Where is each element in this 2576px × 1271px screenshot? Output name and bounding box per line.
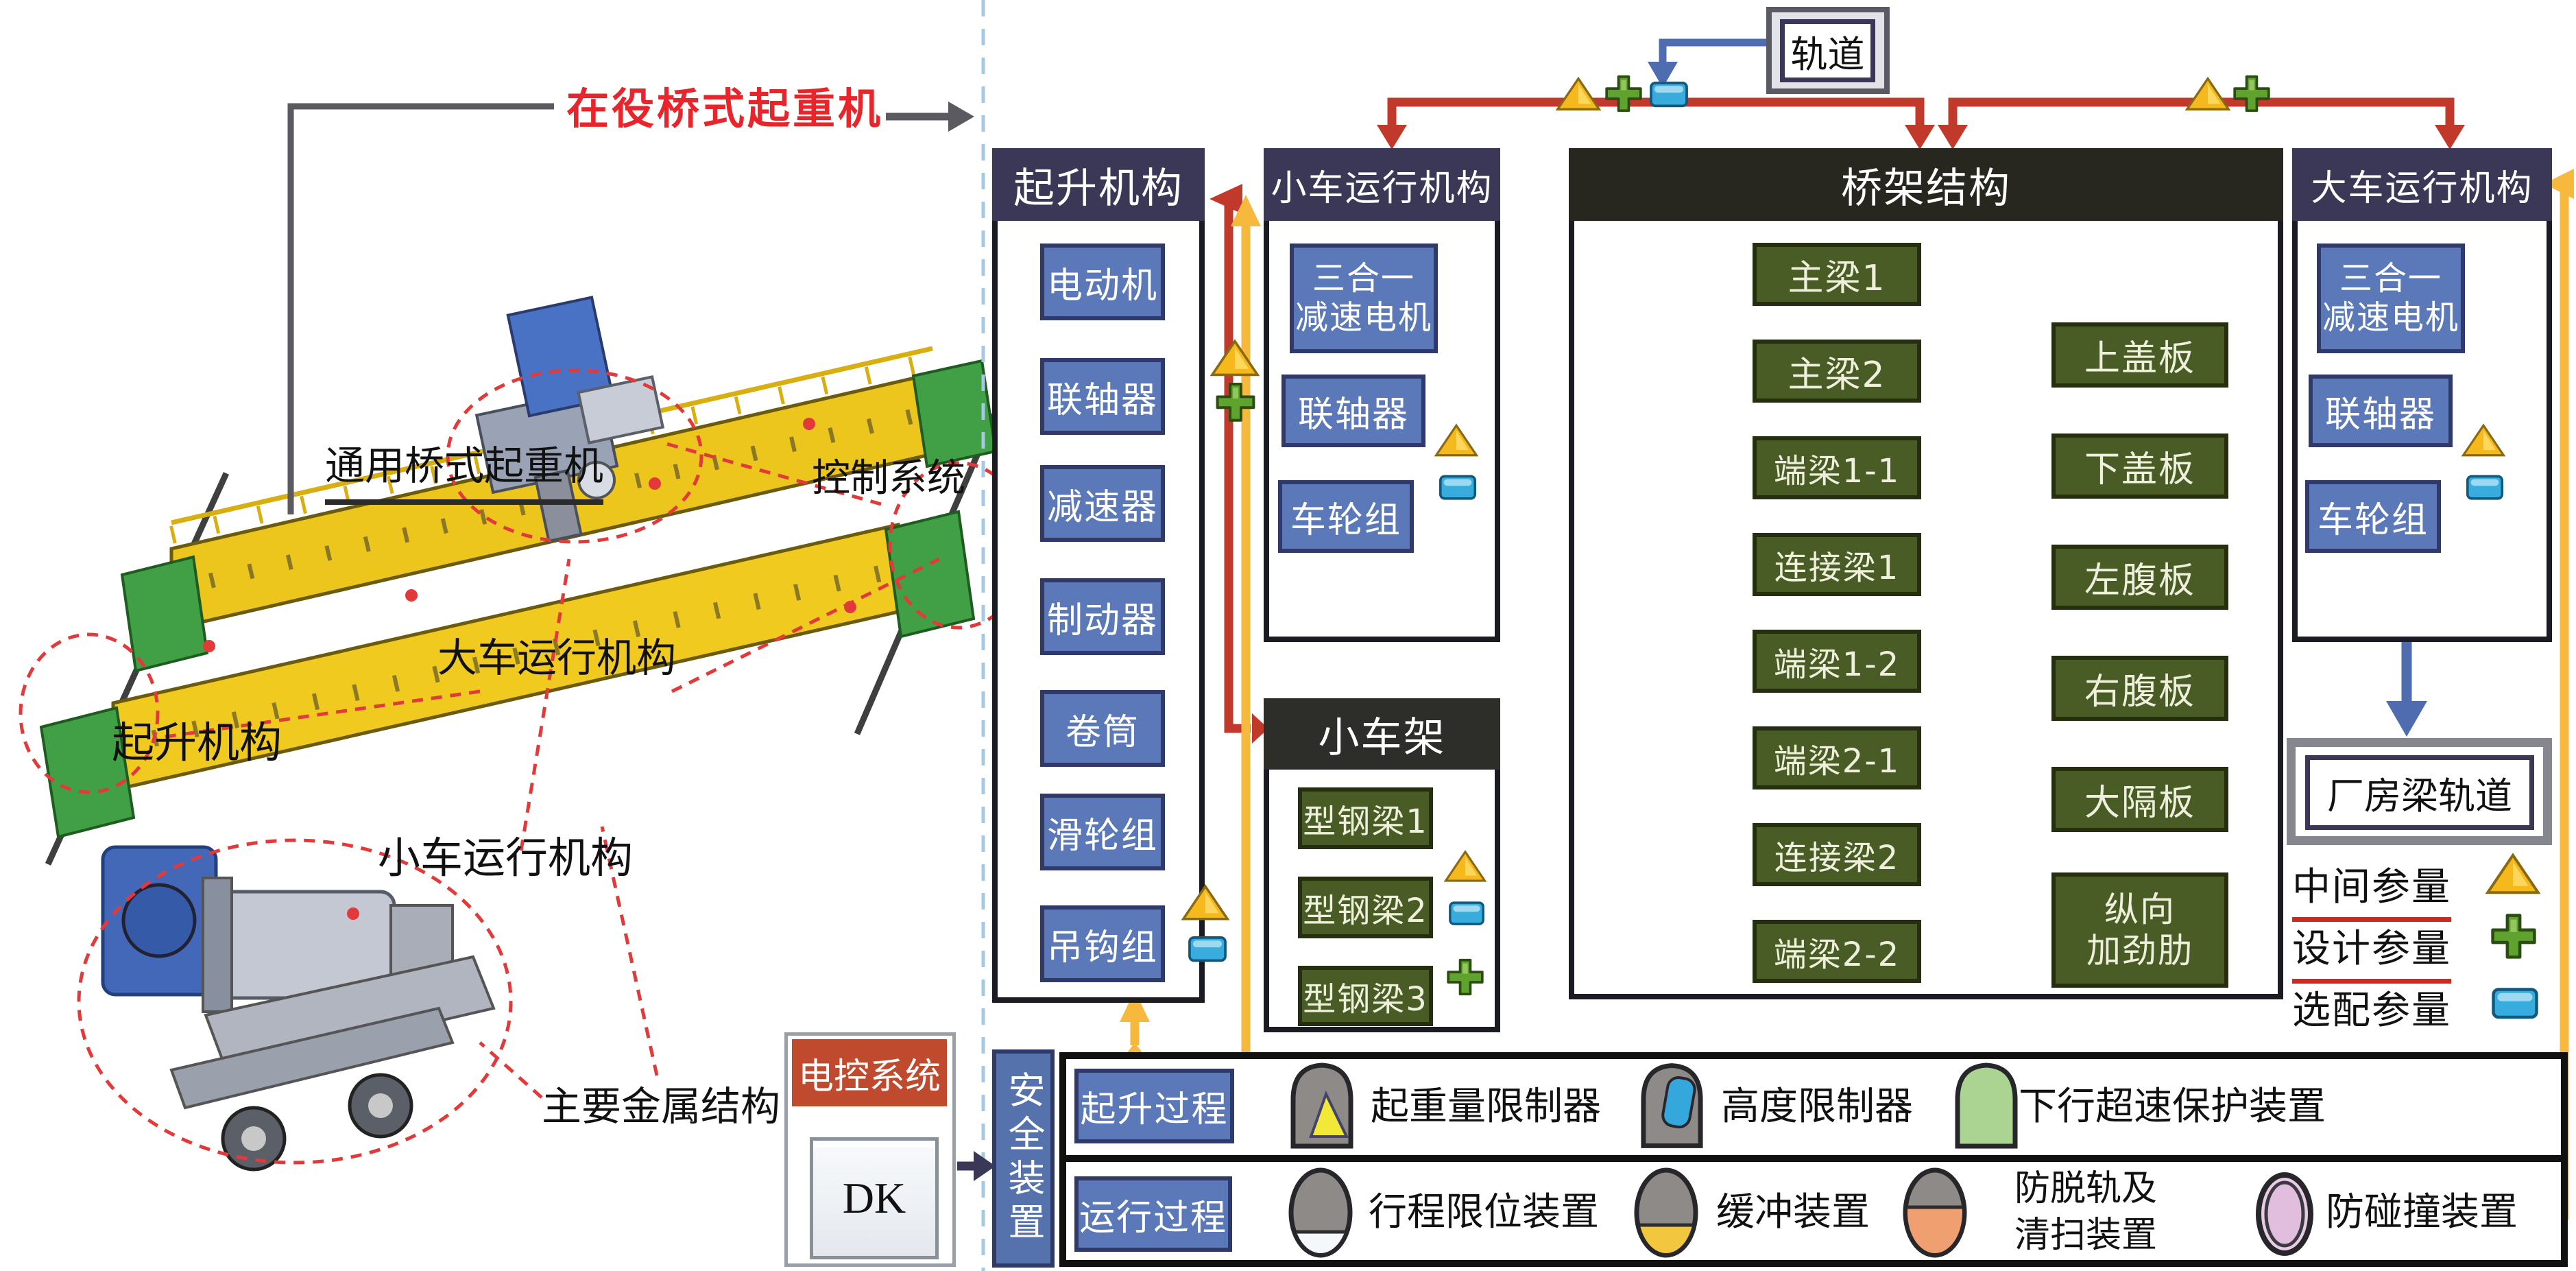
- factory-track-outer: 厂房梁轨道: [2287, 738, 2552, 845]
- overspeed-protection-icon: [1951, 1060, 2022, 1150]
- stiffener-line1: 纵向: [2104, 889, 2176, 930]
- hoist-coupling-box: 联轴器: [1040, 358, 1165, 435]
- height-limiter-label: 高度限制器: [1721, 1076, 1913, 1131]
- hoist-reducer-box: 减速器: [1040, 465, 1165, 542]
- intermediate-parameter-icon: [2461, 423, 2505, 458]
- cart-mechanism-label: 大车运行机构: [437, 626, 676, 683]
- cart-run-panel-header: 大车运行机构: [2292, 148, 2552, 221]
- factory-track-box: 厂房梁轨道: [2305, 755, 2534, 830]
- hoist-brake-box: 制动器: [1040, 578, 1165, 655]
- diaphragm-plate-box: 大隔板: [2051, 767, 2228, 832]
- stiffener-line2: 加劲肋: [2086, 930, 2193, 971]
- electric-control-header: 电控系统: [792, 1039, 947, 1106]
- intermediate-parameter-icon: [1181, 883, 1230, 922]
- trolley-mechanism-label: 小车运行机构: [378, 823, 633, 885]
- general-crane-label: 通用桥式起重机: [325, 433, 603, 505]
- trolley-frame-panel-header: 小车架: [1264, 698, 1500, 770]
- design-parameter-icon: [2230, 74, 2274, 117]
- title-arrow-icon: [948, 102, 974, 132]
- gear-motor-line1: 三合一: [2339, 259, 2442, 298]
- cart-wheel-box: 车轮组: [2305, 480, 2441, 553]
- dk-box: DK: [810, 1137, 939, 1259]
- steel-beam2-box: 型钢梁2: [1298, 877, 1433, 938]
- longitudinal-stiffener-box: 纵向 加劲肋: [2051, 872, 2228, 988]
- overspeed-protection-label: 下行超速保护装置: [2019, 1076, 2326, 1131]
- derail-line1: 防脱轨及: [2014, 1168, 2157, 1209]
- steel-beam1-box: 型钢梁1: [1298, 787, 1433, 849]
- optional-parameter-icon: [2489, 982, 2541, 1023]
- hoist-hook-box: 吊钩组: [1040, 905, 1165, 982]
- optional-parameter-icon: [2464, 471, 2505, 503]
- buffer-icon: [1632, 1165, 1700, 1261]
- hoist-pulley-box: 滑轮组: [1040, 794, 1165, 870]
- optional-parameter-icon: [1447, 897, 1486, 929]
- height-limiter-icon: [1637, 1060, 1707, 1150]
- hoist-panel-header: 起升机构: [992, 148, 1205, 221]
- main-girder1-box: 主梁1: [1753, 243, 1921, 306]
- travel-limit-label: 行程限位装置: [1369, 1181, 1599, 1237]
- bridge-panel-header: 桥架结构: [1569, 148, 2283, 221]
- optional-parameter-icon: [1437, 471, 1478, 503]
- control-system-label: 控制系统: [812, 447, 965, 503]
- optional-parameter-icon: [1186, 931, 1229, 966]
- steel-beam3-box: 型钢梁3: [1298, 966, 1433, 1026]
- top-plate-box: 上盖板: [2051, 322, 2228, 388]
- connect-beam1-box: 连接梁1: [1753, 533, 1921, 596]
- load-limiter-label: 起重量限制器: [1371, 1076, 1601, 1131]
- cart-coupling-box: 联轴器: [2309, 375, 2453, 447]
- gear-motor-line2: 减速电机: [2322, 298, 2459, 337]
- gear-motor-line2: 减速电机: [1295, 298, 1432, 337]
- derail-sweeper-icon: [1901, 1165, 1969, 1261]
- bottom-plate-box: 下盖板: [2051, 433, 2228, 499]
- intermediate-parameter-icon: [2485, 852, 2540, 896]
- main-girder2-box: 主梁2: [1753, 340, 1921, 403]
- in-service-crane-title: 在役桥式起重机: [566, 74, 883, 136]
- intermediate-parameter-icon: [1444, 849, 1486, 883]
- legend-intermediate-label: 中间参量: [2292, 856, 2451, 922]
- design-parameter-icon: [1211, 381, 1260, 427]
- safety-devices-text: 安全装置: [996, 1071, 1050, 1246]
- gear-motor-line1: 三合一: [1312, 259, 1415, 298]
- legend-optional-label: 选配参量: [2292, 979, 2451, 1035]
- intermediate-parameter-icon: [2185, 75, 2230, 112]
- run-stage-box: 运行过程: [1074, 1176, 1232, 1252]
- end-beam1-2-box: 端梁1-2: [1753, 630, 1921, 693]
- hoist-stage-box: 起升过程: [1074, 1069, 1234, 1143]
- load-limiter-icon: [1286, 1060, 1358, 1150]
- cart-gear-motor-box: 三合一 减速电机: [2317, 243, 2465, 353]
- trolley-wheel-box: 车轮组: [1278, 480, 1414, 553]
- design-parameter-icon: [1443, 958, 1488, 1000]
- safety-row-divider: [1059, 1155, 2568, 1162]
- anti-collision-label: 防碰撞装置: [2326, 1181, 2518, 1237]
- derail-sweeper-label: 防脱轨及 清扫装置: [2014, 1166, 2157, 1259]
- design-parameter-icon: [1602, 74, 1646, 117]
- end-beam2-1-box: 端梁2-1: [1753, 726, 1921, 789]
- intermediate-parameter-icon: [1210, 338, 1260, 378]
- end-beam1-1-box: 端梁1-1: [1753, 436, 1921, 499]
- intermediate-parameter-icon: [1556, 75, 1601, 112]
- legend-design-label: 设计参量: [2292, 918, 2451, 984]
- connect-beam2-box: 连接梁2: [1753, 823, 1921, 886]
- left-web-plate-box: 左腹板: [2051, 545, 2228, 610]
- hoist-motor-box: 电动机: [1040, 243, 1165, 320]
- electric-control-outer: 电控系统 DK: [784, 1032, 956, 1267]
- bridge-crane-structure-diagram: 在役桥式起重机 通用桥式起重机 大车运行机构 控制系统 起升机构 小车运行机构 …: [0, 0, 2576, 1271]
- derail-line2: 清扫装置: [2014, 1215, 2157, 1256]
- track-box-outer: 轨道: [1766, 7, 1890, 94]
- safety-devices-label: 安全装置: [992, 1049, 1055, 1268]
- trolley-gear-motor-box: 三合一 减速电机: [1290, 243, 1438, 353]
- hoist-drum-box: 卷筒: [1040, 690, 1165, 767]
- end-beam2-2-box: 端梁2-2: [1753, 920, 1921, 983]
- anti-collision-icon: [2254, 1169, 2315, 1259]
- trolley-coupling-box: 联轴器: [1281, 375, 1425, 447]
- travel-limit-icon: [1286, 1165, 1355, 1261]
- buffer-label: 缓冲装置: [1716, 1181, 1870, 1237]
- hoist-mechanism-label: 起升机构: [112, 708, 282, 770]
- optional-parameter-icon: [1648, 77, 1690, 111]
- track-box: 轨道: [1780, 19, 1875, 82]
- intermediate-parameter-icon: [1434, 423, 1478, 458]
- right-web-plate-box: 右腹板: [2051, 656, 2228, 721]
- design-parameter-icon: [2488, 912, 2540, 964]
- trolley-run-panel-header: 小车运行机构: [1264, 148, 1500, 221]
- main-metal-structure-label: 主要金属结构: [542, 1074, 780, 1132]
